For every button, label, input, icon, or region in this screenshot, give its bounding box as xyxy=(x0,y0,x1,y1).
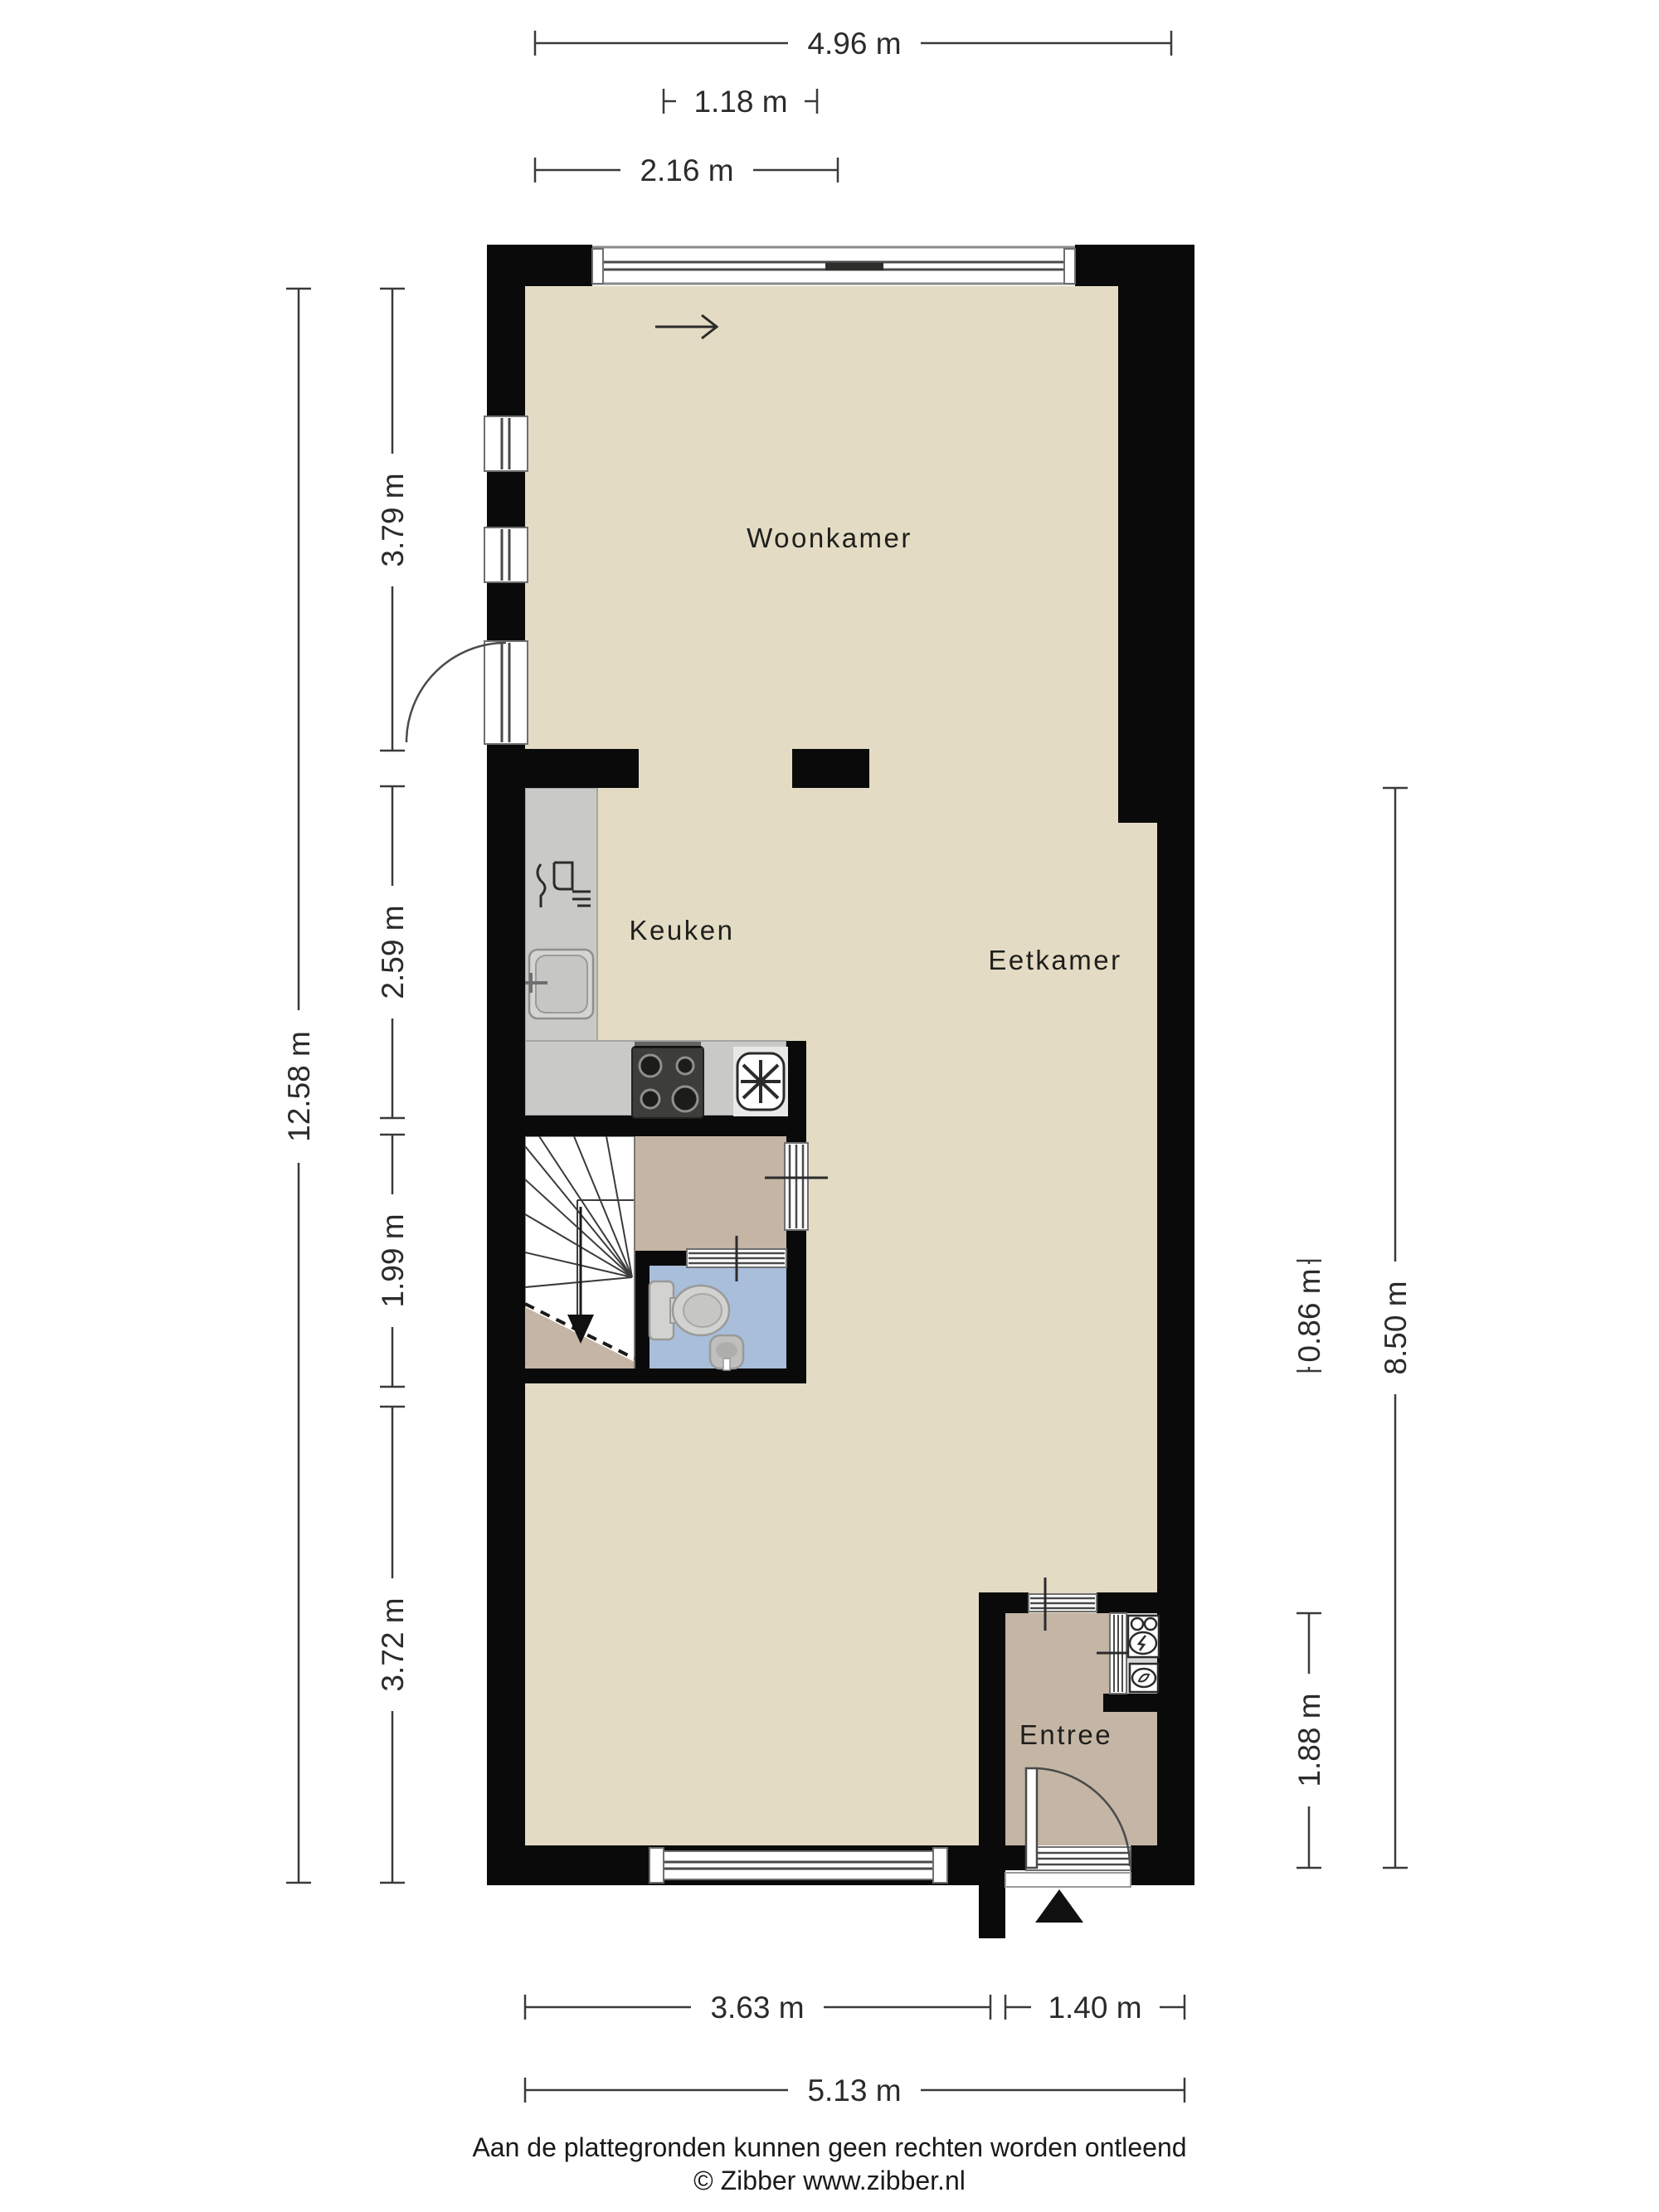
dim-left-rear: 3.72 m xyxy=(372,1407,412,1883)
wall-right-thick xyxy=(1118,245,1194,788)
electric-meter-icon xyxy=(1128,1616,1159,1657)
dim-top-slider-label: 1.18 m xyxy=(693,85,787,119)
dim-left-woonkamer-label: 3.79 m xyxy=(376,473,410,566)
dim-bottom-entree-label: 1.40 m xyxy=(1048,1991,1141,2025)
wall-entree-top-a xyxy=(1005,1592,1029,1613)
wall-meter-cupboard-bottom xyxy=(1103,1694,1160,1712)
kitchen-sink xyxy=(525,950,593,1018)
wall-entree-left-pier xyxy=(979,1592,1005,1938)
window-bottom xyxy=(649,1848,947,1883)
entree-label: Entree xyxy=(1019,1719,1112,1750)
eetkamer-label: Eetkamer xyxy=(988,945,1121,975)
dim-left-keuken-label: 2.59 m xyxy=(376,905,410,999)
sliding-panel xyxy=(825,263,883,270)
dim-right-entree-label: 1.88 m xyxy=(1292,1693,1326,1787)
front-door-step xyxy=(1005,1873,1131,1887)
front-door-leaf xyxy=(1026,1768,1037,1868)
window-left-2 xyxy=(484,527,528,582)
wall-right-thin xyxy=(1157,788,1194,1885)
wall-toilet-bottom xyxy=(487,1369,806,1383)
dim-left-stairs: 1.99 m xyxy=(372,1135,412,1387)
dim-bottom-left: 3.63 m xyxy=(525,1987,990,2027)
wall-toilet-top xyxy=(635,1251,687,1266)
floorplan-page: Woonkamer Keuken Eetkamer Entree 4.96 m … xyxy=(0,0,1659,2212)
stove xyxy=(632,1042,703,1118)
hand-basin xyxy=(710,1335,743,1370)
keuken-label: Keuken xyxy=(630,915,735,946)
dim-right-entree: 1.88 m xyxy=(1289,1613,1329,1868)
dim-bottom-left-label: 3.63 m xyxy=(710,1991,804,2025)
wall-hall-east-upper xyxy=(786,1041,806,1143)
wall-divider-left xyxy=(487,749,639,788)
side-door xyxy=(406,641,528,744)
woonkamer-label: Woonkamer xyxy=(747,523,912,553)
wall-bottom-entree-left xyxy=(1005,1845,1026,1870)
floor-plan: Woonkamer Keuken Eetkamer Entree 4.96 m … xyxy=(0,0,1659,2212)
dim-right-toilet-label: 0.86 m xyxy=(1292,1268,1326,1362)
dim-bottom-total: 5.13 m xyxy=(525,2070,1185,2110)
extractor-fan-icon xyxy=(733,1047,788,1116)
dim-top-total: 4.96 m xyxy=(535,23,1171,63)
wall-toilet-right xyxy=(786,1266,806,1383)
dim-left-keuken: 2.59 m xyxy=(372,786,412,1118)
dim-left-rear-label: 3.72 m xyxy=(376,1597,410,1691)
basin-tap-icon xyxy=(723,1359,730,1370)
dim-top-kitchen-label: 2.16 m xyxy=(640,153,733,187)
dim-bottom-entree: 1.40 m xyxy=(1005,1987,1185,2027)
dim-left-total-label: 12.58 m xyxy=(282,1031,316,1142)
dim-left-stairs-label: 1.99 m xyxy=(376,1213,410,1307)
wall-left xyxy=(487,245,525,1885)
dim-top-total-label: 4.96 m xyxy=(807,27,901,61)
footer-copyright: © Zibber www.zibber.nl xyxy=(693,2166,966,2195)
dim-top-kitchen: 2.16 m xyxy=(535,150,838,190)
footer-disclaimer: Aan de plattegronden kunnen geen rechten… xyxy=(472,2132,1186,2162)
dim-right-total-label: 8.50 m xyxy=(1379,1281,1413,1374)
wall-toilet-left xyxy=(635,1251,649,1383)
window-left-1 xyxy=(484,416,528,471)
wall-right-notch xyxy=(1118,788,1160,823)
dim-right-toilet: 0.86 m xyxy=(1289,1261,1329,1371)
wall-divider-stub xyxy=(792,749,869,788)
dim-left-woonkamer: 3.79 m xyxy=(372,289,412,751)
gas-meter-icon xyxy=(1130,1664,1158,1692)
toilet xyxy=(649,1281,729,1339)
entrance-marker-icon xyxy=(1035,1889,1083,1923)
dim-top-slider: 1.18 m xyxy=(664,81,817,121)
hall-floor xyxy=(635,1136,786,1251)
wall-bottom-entree-right xyxy=(1131,1845,1194,1885)
dim-right-total: 8.50 m xyxy=(1375,788,1415,1868)
wall-entree-top-b xyxy=(1097,1592,1160,1613)
wall-hall-east-lower xyxy=(786,1230,806,1266)
dim-bottom-total-label: 5.13 m xyxy=(807,2073,901,2107)
dim-left-total: 12.58 m xyxy=(279,289,319,1883)
